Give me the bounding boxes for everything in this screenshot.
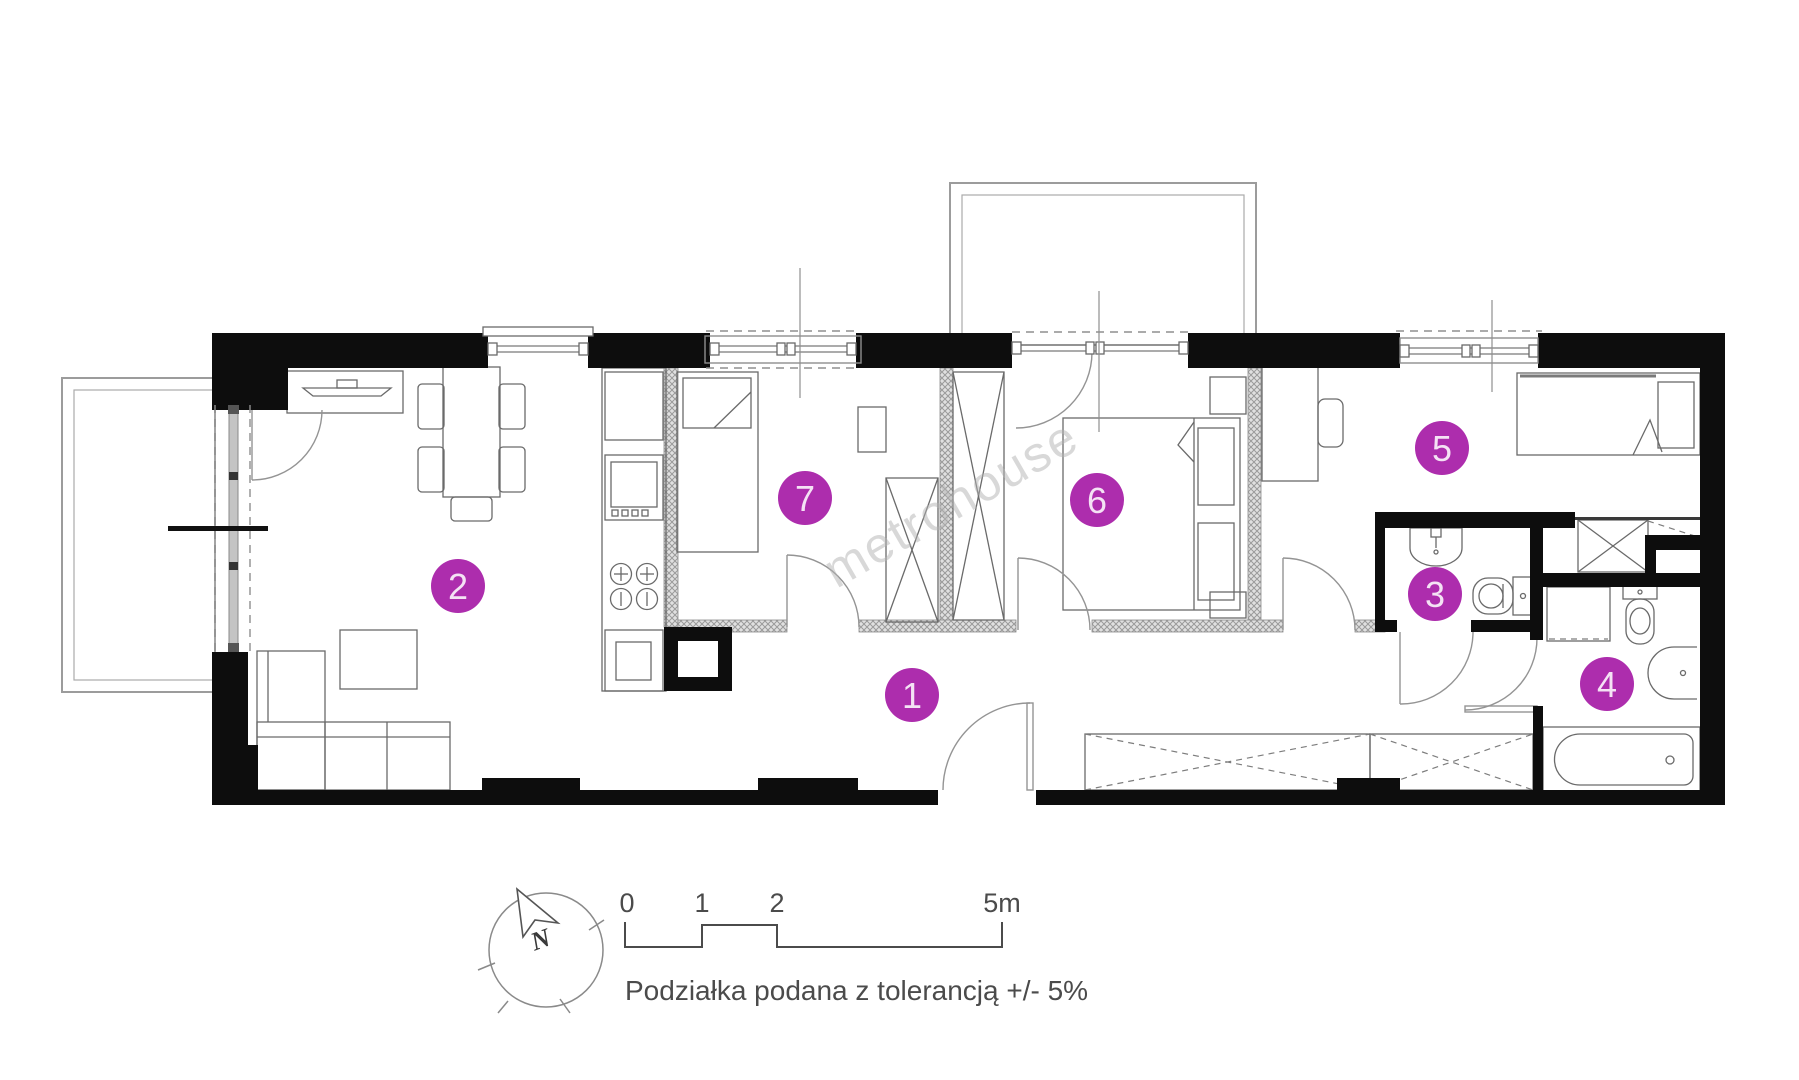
nightstand [1210,377,1246,414]
entrance-door [943,703,1033,790]
room-7-badge: 7 [778,471,832,525]
chair [418,447,444,492]
svg-text:2: 2 [448,566,468,607]
scale-bar-line [625,922,1002,947]
north-label: N [526,922,556,956]
coffee-table [340,630,417,689]
toilet [1473,577,1533,615]
desk [1262,366,1318,481]
single-bed [677,372,758,552]
section-mark [168,526,268,531]
dining-table [443,367,500,497]
window-room-5 [1396,331,1542,363]
shower [1547,587,1610,641]
svg-text:2: 2 [769,888,784,918]
bathroom-3-door [1400,632,1473,704]
room-6-badge: 6 [1070,473,1124,527]
bathtub [1543,727,1700,792]
window-living [483,327,593,355]
svg-text:5m: 5m [983,888,1021,918]
pillow [1198,428,1234,505]
svg-text:0: 0 [619,888,634,918]
room-1-badge: 1 [885,668,939,722]
room-5-furniture [1262,366,1700,481]
window-room-7 [705,331,861,368]
desk-chair [1318,399,1343,447]
balcony-door-window [1012,332,1188,354]
top-balcony [950,183,1256,345]
svg-text:6: 6 [1087,480,1107,521]
room-5-door [1283,558,1355,630]
stove-burners [611,564,658,610]
svg-text:4: 4 [1597,664,1617,705]
balcony-window-left [168,405,268,652]
svg-text:1: 1 [694,888,709,918]
left-balcony [62,378,215,692]
kitchen-furniture [602,368,666,691]
bathroom-4-door [1465,638,1537,712]
scale-bar: 0 1 2 5m Podziałka podana z tolerancją +… [619,888,1088,1006]
floor-plan-canvas: metrohouse 1 2 3 4 5 6 7 N 0 1 2 5m P [0,0,1799,1080]
sink-cabinet [605,630,663,691]
svg-text:7: 7 [795,478,815,519]
partition-walls [664,368,1385,632]
sofa [257,651,325,790]
shelf [858,407,886,452]
chair [451,497,492,521]
corridor-wardrobes [1085,734,1533,790]
living-room-furniture [257,367,525,790]
single-bed [1517,373,1700,455]
room-2-badge: 2 [431,559,485,613]
pillow [1198,523,1234,600]
sink [1648,647,1697,699]
fridge [605,372,663,440]
svg-text:5: 5 [1432,428,1452,469]
svg-text:1: 1 [902,675,922,716]
tv [303,388,391,396]
room-5-badge: 5 [1415,421,1469,475]
pillow [1658,382,1694,448]
room-6-door [1018,558,1090,630]
toilet [1623,585,1657,644]
floor-plan-page: metrohouse 1 2 3 4 5 6 7 N 0 1 2 5m P [0,0,1799,1080]
chair [499,447,525,492]
chair [499,384,525,429]
compass: N [478,889,604,1013]
living-room-door [252,410,322,480]
tolerance-note: Podziałka podana z tolerancją +/- 5% [625,975,1088,1006]
chair [418,384,444,429]
room-4-badge: 4 [1580,657,1634,711]
pillow [683,378,751,428]
room-3-badge: 3 [1408,567,1462,621]
svg-text:3: 3 [1425,574,1445,615]
